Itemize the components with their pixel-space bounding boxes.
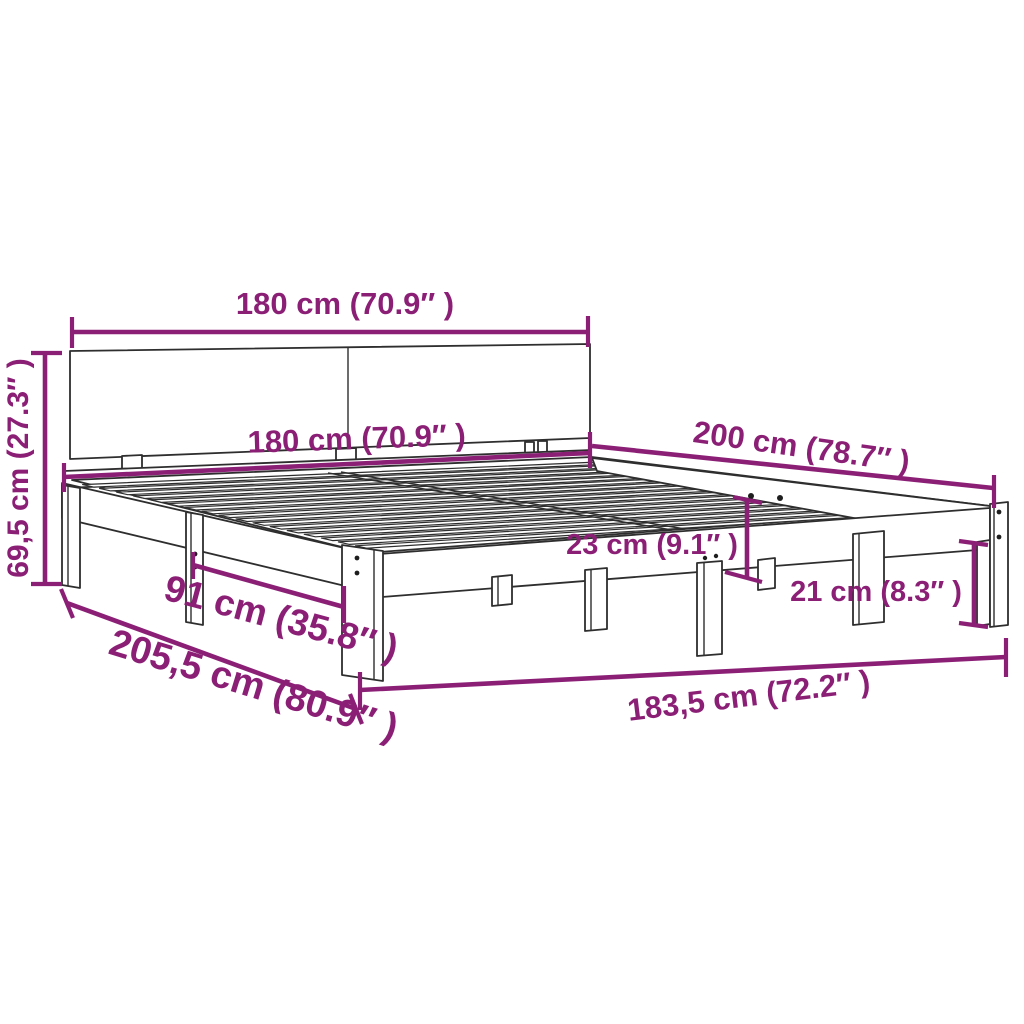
support-leg <box>758 558 775 590</box>
dim-headboard-height <box>31 353 62 584</box>
bed-drawing <box>62 344 1008 681</box>
head-left-leg <box>62 485 80 588</box>
dim-label-bed-width: 180 cm (70.9″ ) <box>247 417 466 460</box>
support-leg <box>697 561 722 656</box>
diagram-canvas: 180 cm (70.9″ ) 69,5 cm (27.3″ ) 180 cm … <box>0 0 1024 1024</box>
dim-label-leg-clearance: 21 cm (8.3″ ) <box>790 576 962 608</box>
foot-right-leg-strip <box>977 540 990 626</box>
dim-label-frame-depth: 23 cm (9.1″ ) <box>566 529 738 561</box>
bed-frame-dimension-diagram: 180 cm (70.9″ ) 69,5 cm (27.3″ ) 180 cm … <box>0 0 1024 1024</box>
support-leg <box>585 568 607 631</box>
dim-label-headboard-height: 69,5 cm (27.3″ ) <box>2 358 35 578</box>
foot-right-corner-leg <box>990 502 1008 627</box>
support-leg <box>492 575 512 606</box>
dim-label-headboard-width: 180 cm (70.9″ ) <box>236 286 454 321</box>
